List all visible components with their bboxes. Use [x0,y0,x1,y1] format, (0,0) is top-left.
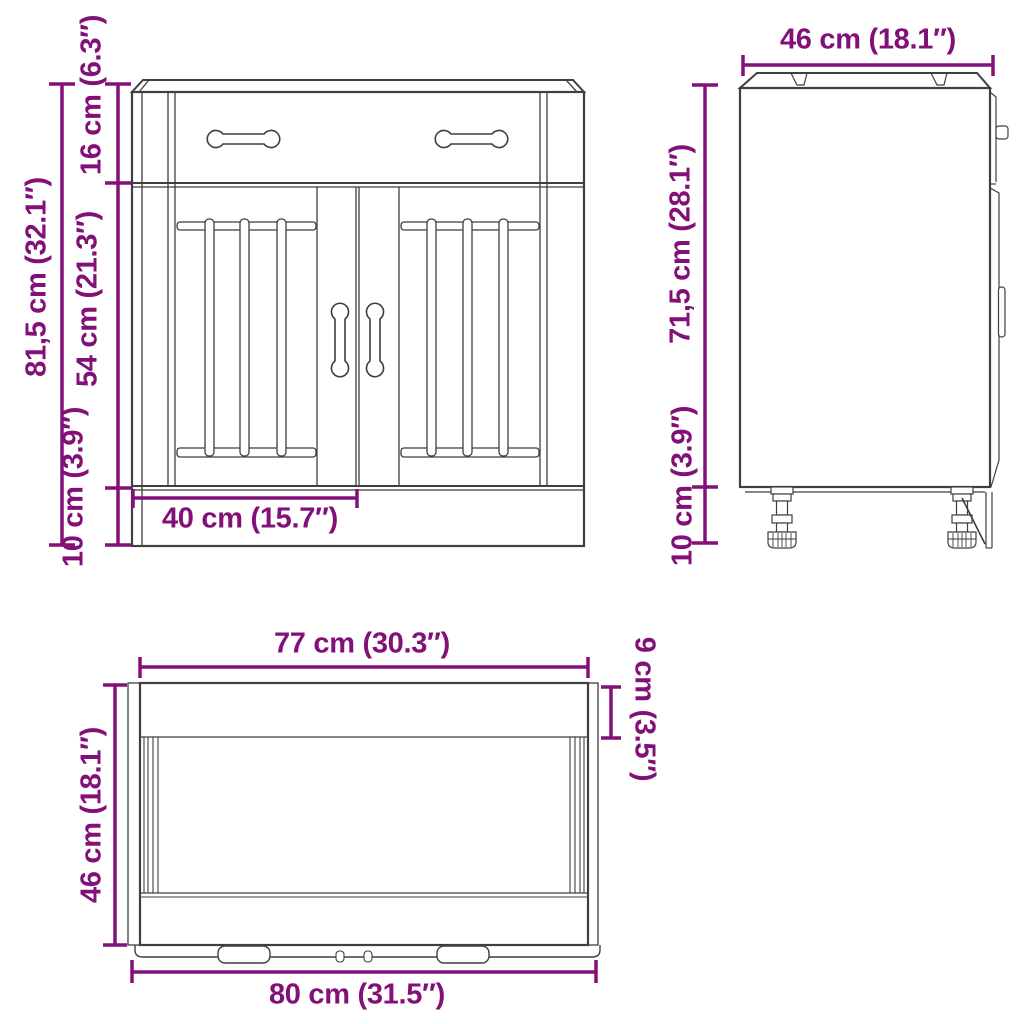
cabinet-dimension-diagram: 81,5 cm (32.1″) 16 cm (6.3″) 54 cm (21.3… [0,0,1024,1024]
side-depth-label: 46 cm (18.1″) [780,26,956,55]
side-body-height-label: 71,5 cm (28.1″) [667,144,696,344]
drawer-handle-left [207,130,280,147]
top-rail-depth-label: 9 cm (3.5″) [630,637,659,781]
top-total-width-label: 80 cm (31.5″) [269,981,445,1010]
door-handle-left [331,303,348,377]
door-handle-right [366,303,383,377]
front-plinth-height-label: 10 cm (3.9″) [60,407,89,567]
front-view-drawing [132,80,584,546]
front-drawer-height-label: 16 cm (6.3″) [78,15,107,175]
front-door-height-label: 54 cm (21.3″) [74,211,103,387]
top-dimension-lines [103,657,621,983]
top-inner-width-label: 77 cm (30.3″) [274,630,450,659]
drawer-handle-right [435,130,508,147]
side-view-drawing [740,73,1008,548]
side-dimension-lines [692,55,993,543]
top-depth-label: 46 cm (18.1″) [78,727,107,903]
cabinet-foot-left [768,487,796,548]
side-panel-edge-lines [144,737,584,893]
front-total-height-label: 81,5 cm (32.1″) [23,177,52,377]
top-view-drawing [128,683,600,963]
side-leg-height-label: 10 cm (3.9″) [669,406,698,566]
front-door-width-label: 40 cm (15.7″) [162,505,338,534]
diagram-line-art [0,0,1024,1024]
